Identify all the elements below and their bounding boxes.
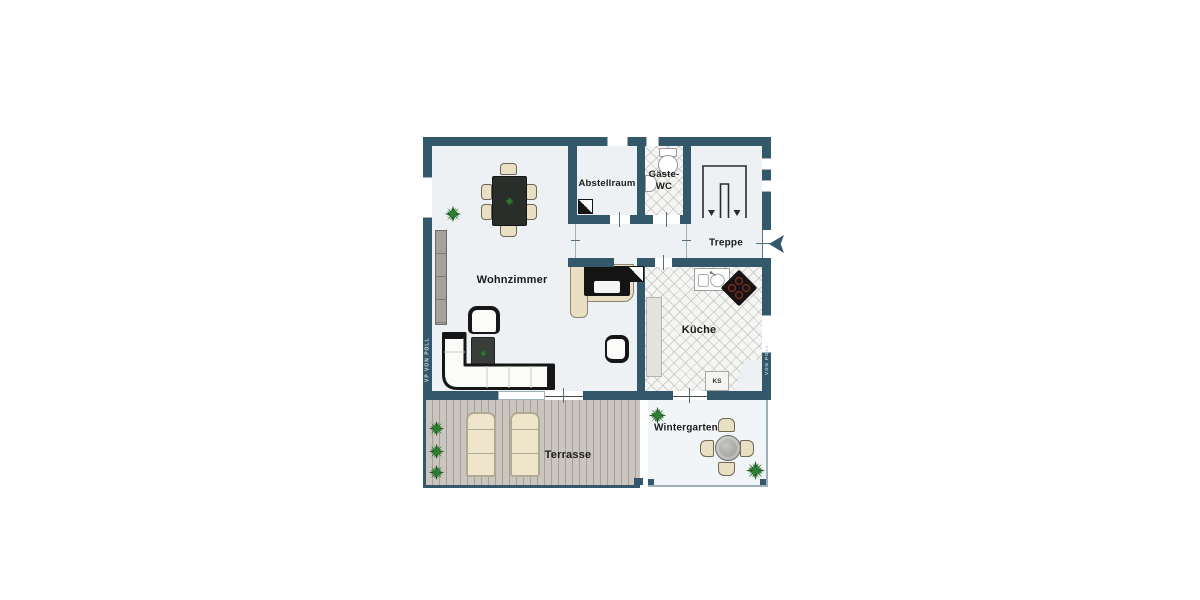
door-swing-icon bbox=[628, 266, 644, 282]
entry-arrow-icon bbox=[769, 235, 784, 253]
armchair bbox=[468, 306, 500, 334]
wall-wc-treppe bbox=[683, 146, 691, 215]
garden-table bbox=[715, 435, 741, 461]
room-label-gaeste-wc: Gäste- WC bbox=[649, 169, 680, 193]
wintergarten-door-tick bbox=[689, 388, 690, 403]
room-label-wohnzimmer: Wohnzimmer bbox=[477, 274, 548, 286]
dining-table bbox=[492, 176, 527, 226]
wall-wohnzimmer-abstellraum bbox=[568, 146, 577, 215]
window-top-2 bbox=[646, 137, 659, 146]
floor-plan-canvas: KS Wohnzimmer Abstellraum Gäste- WC Trep… bbox=[0, 0, 1200, 600]
table-plant-icon bbox=[504, 196, 515, 207]
door-swing-icon bbox=[578, 199, 593, 214]
wc-door-tick bbox=[666, 212, 667, 227]
room-label-kueche: Küche bbox=[682, 324, 717, 336]
garden-chair bbox=[740, 440, 754, 457]
room-label-treppe: Treppe bbox=[709, 238, 743, 249]
window-terrace bbox=[498, 391, 545, 400]
wall-corridor-segment-1 bbox=[568, 258, 614, 267]
sliding-door-terrace bbox=[545, 391, 583, 400]
dining-chair bbox=[500, 225, 517, 237]
window-right-1 bbox=[762, 158, 771, 170]
room-label-gaeste-wc-line2: WC bbox=[649, 181, 680, 193]
room-label-abstellraum: Abstellraum bbox=[578, 178, 635, 190]
plant-icon bbox=[428, 420, 445, 437]
wall-corridor-segment-3 bbox=[672, 258, 762, 267]
wall-hall-segment-2 bbox=[630, 215, 653, 224]
dining-chair bbox=[526, 184, 537, 200]
passage-treppe-tick bbox=[682, 240, 691, 241]
abstellraum-door-tick bbox=[619, 212, 620, 227]
armchair bbox=[605, 335, 629, 363]
sideboard bbox=[435, 230, 447, 325]
lounger bbox=[466, 412, 496, 477]
window-top-1 bbox=[607, 137, 628, 146]
passage-treppe-corridor bbox=[686, 224, 687, 258]
wall-top bbox=[423, 137, 771, 146]
kitchen-counter bbox=[646, 297, 662, 377]
room-wintergarten: Wintergarten bbox=[648, 400, 768, 487]
dining-chair bbox=[526, 204, 537, 220]
garden-chair bbox=[718, 462, 735, 476]
tv-lowboard bbox=[570, 264, 634, 318]
room-label-gaeste-wc-line1: Gäste- bbox=[649, 169, 680, 181]
plant-icon bbox=[428, 464, 445, 481]
plant-icon bbox=[745, 460, 766, 481]
sliding-door-tick bbox=[563, 388, 564, 403]
dining-chair bbox=[500, 163, 517, 175]
corner-sofa bbox=[442, 332, 555, 390]
plant-icon bbox=[428, 443, 445, 460]
wall-hall-segment-3 bbox=[680, 215, 691, 224]
fridge-label: KS bbox=[712, 378, 721, 385]
room-label-wintergarten: Wintergarten bbox=[654, 423, 718, 434]
door-abstellraum-opening bbox=[610, 215, 630, 224]
wintergarten-post bbox=[648, 479, 654, 485]
kueche-door-tick bbox=[663, 255, 664, 270]
watermark-left: VP VON POLL bbox=[423, 329, 432, 391]
garden-chair bbox=[718, 418, 735, 432]
room-terrasse: Terrasse bbox=[423, 400, 640, 488]
garden-chair bbox=[700, 440, 714, 457]
stairs-icon bbox=[702, 165, 747, 218]
watermark-right: VON POLL bbox=[762, 332, 771, 387]
entry-door-tick bbox=[756, 243, 771, 244]
wall-hall-segment-1 bbox=[568, 215, 610, 224]
fridge: KS bbox=[705, 371, 729, 391]
terrace-post bbox=[634, 478, 643, 485]
window-left bbox=[423, 177, 432, 218]
wall-bottom bbox=[423, 391, 771, 400]
room-label-terrasse: Terrasse bbox=[545, 449, 592, 461]
passage-wohnzimmer-corridor bbox=[575, 224, 576, 258]
dining-chair bbox=[481, 184, 492, 200]
wall-abstellraum-wc bbox=[637, 146, 645, 215]
lounger bbox=[510, 412, 540, 477]
window-right-2 bbox=[762, 180, 771, 192]
plant-icon bbox=[444, 205, 462, 223]
dining-chair bbox=[481, 204, 492, 220]
tv-screen bbox=[594, 281, 620, 293]
passage-wohnzimmer-tick bbox=[571, 240, 580, 241]
door-wintergarten bbox=[673, 391, 707, 400]
